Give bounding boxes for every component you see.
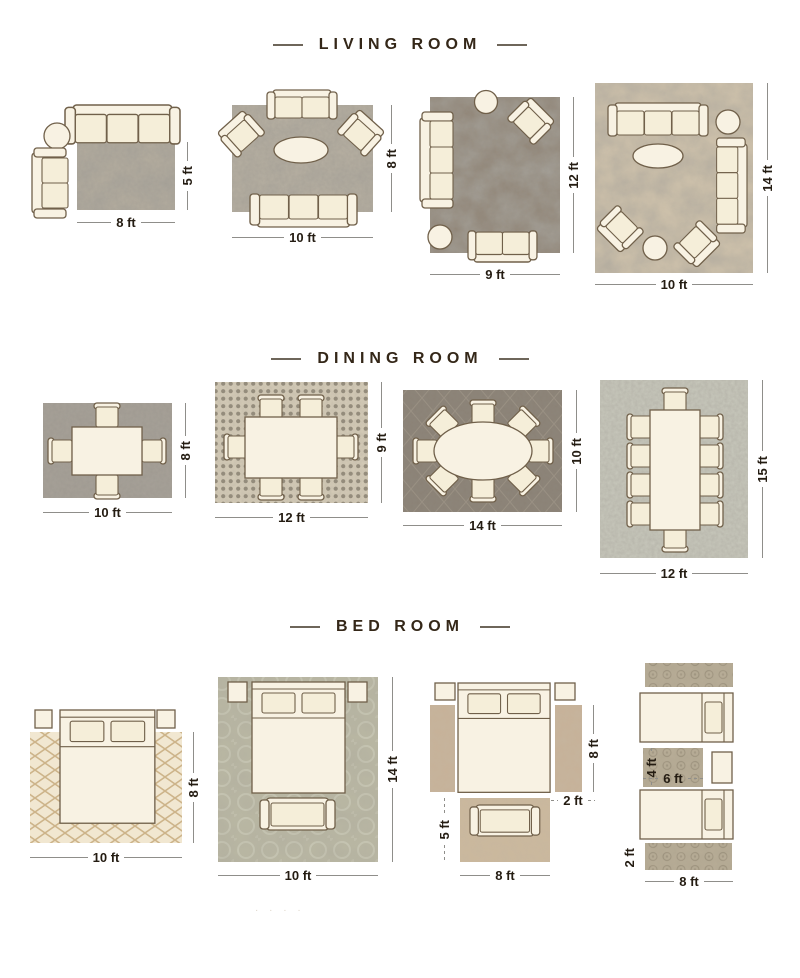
dimension-label: 9 ft — [480, 267, 510, 282]
chair — [627, 501, 651, 527]
chair — [699, 501, 723, 527]
title-dash — [271, 358, 301, 360]
layout-living-9x12: 9 ft 12 ft — [408, 82, 593, 284]
dimension-label: 10 ft — [89, 505, 126, 520]
layout-living-8x5: 8 ft 5 ft — [28, 95, 208, 235]
section-title-text: BED ROOM — [336, 618, 464, 636]
dimension-height: 12 ft — [565, 97, 581, 253]
dimension-label: 5 ft — [437, 815, 452, 845]
dimension-width: 12 ft — [215, 510, 368, 525]
runner-rug — [430, 705, 455, 792]
sofa — [250, 194, 357, 227]
layout-bed-10x8: 10 ft 8 ft — [25, 700, 205, 868]
title-dash — [499, 358, 529, 360]
dimension-label: 8 ft — [178, 436, 193, 466]
layout-living-10x14: 10 ft 14 ft — [592, 76, 787, 296]
dimension-runner-height: 2 ft — [621, 843, 637, 870]
nightstand — [348, 682, 367, 702]
dimension-height: 8 ft — [177, 403, 193, 498]
bench — [260, 798, 335, 830]
sofa — [717, 138, 747, 233]
dimension-height: 5 ft — [179, 142, 195, 210]
dimension-width: 10 ft — [595, 277, 753, 292]
chair — [142, 438, 166, 464]
title-dash — [290, 626, 320, 628]
chair — [627, 414, 651, 440]
runner-rug — [645, 663, 733, 687]
nightstand — [157, 710, 175, 728]
chair — [94, 475, 120, 499]
title-dash — [480, 626, 510, 628]
chair — [470, 400, 496, 424]
round-ottoman — [428, 225, 452, 249]
section-title-living-room: LIVING ROOM — [0, 36, 800, 54]
sofa — [65, 105, 180, 144]
title-dash — [497, 44, 527, 46]
dining-table — [650, 410, 700, 530]
title-dash — [273, 44, 303, 46]
dimension-height: 8 ft — [185, 732, 201, 843]
oval-coffee-table — [274, 137, 328, 163]
dimension-label: 15 ft — [755, 451, 770, 488]
dimension-label: 2 ft — [622, 843, 637, 873]
chair — [258, 395, 284, 419]
dimension-width: 10 ft — [218, 868, 378, 883]
floorplan-illustration — [592, 76, 787, 296]
chair — [699, 414, 723, 440]
chair — [470, 478, 496, 502]
dimension-height: 14 ft — [384, 677, 400, 862]
sofa — [420, 112, 453, 208]
dimension-label: 14 ft — [760, 160, 775, 197]
dimension-width: 12 ft — [600, 566, 748, 581]
chair — [699, 472, 723, 498]
dimension-width: 10 ft — [232, 230, 373, 245]
dimension-height: 8 ft — [383, 105, 399, 212]
rug — [77, 142, 175, 210]
bed — [458, 683, 550, 792]
round-ottoman — [643, 236, 667, 260]
round-side-table — [475, 91, 498, 114]
floorplan-illustration — [25, 700, 205, 868]
section-title-bed-room: BED ROOM — [0, 618, 800, 636]
floorplan-illustration — [212, 380, 394, 528]
layout-dining-14x10: 14 ft 10 ft — [400, 385, 585, 533]
dimension-width: 9 ft — [430, 267, 560, 282]
bed — [640, 790, 733, 839]
oval-coffee-table — [633, 144, 683, 168]
dimension-label: 10 ft — [569, 433, 584, 470]
dimension-label: 9 ft — [374, 428, 389, 458]
layout-dining-10x8: 10 ft 8 ft — [30, 395, 205, 525]
runner-rug — [645, 843, 732, 870]
dimension-width: 10 ft — [30, 850, 182, 865]
layout-dining-12x9: 12 ft 9 ft — [212, 380, 394, 528]
layout-living-10x8: 10 ft 8 ft — [222, 88, 407, 250]
dimension-label: 8 ft — [674, 874, 704, 889]
dimension-width: 14 ft — [403, 518, 562, 533]
chair — [298, 395, 324, 419]
dimension-height: 10 ft — [568, 390, 584, 512]
dimension-label: 10 ft — [88, 850, 125, 865]
dimension-label: 10 ft — [280, 868, 317, 883]
chair — [627, 443, 651, 469]
floorplan-illustration — [595, 375, 780, 587]
chair — [699, 443, 723, 469]
chair — [48, 438, 72, 464]
dimension-runner-width: 2 ft — [551, 793, 595, 808]
floorplan-illustration — [210, 670, 408, 884]
dimension-label: 6 ft — [658, 771, 688, 786]
dimension-height: 8 ft — [585, 705, 601, 792]
dining-table — [245, 417, 337, 478]
nightstand — [35, 710, 52, 728]
chair — [662, 528, 688, 552]
dimension-label: 8 ft — [586, 734, 601, 764]
nightstand — [435, 683, 455, 700]
dimension-foot-height: 5 ft — [436, 798, 452, 862]
layout-bed-10x14: 10 ft 14 ft — [210, 670, 408, 884]
dimension-height: 15 ft — [754, 380, 770, 558]
dimension-label: 5 ft — [180, 161, 195, 191]
chair — [298, 476, 324, 500]
layout-bed-twin-runners: 4 ft 6 ft 2 ft 8 ft — [618, 655, 798, 895]
round-side-table — [44, 123, 70, 149]
floorplan-illustration — [400, 385, 585, 533]
dimension-label: 12 ft — [273, 510, 310, 525]
round-side-table — [716, 110, 740, 134]
nightstand — [228, 682, 247, 702]
dimension-width: 8 ft — [77, 215, 175, 230]
dimension-height: 9 ft — [373, 382, 389, 503]
dimension-width: 8 ft — [645, 874, 733, 889]
watermark: · · · · — [255, 905, 305, 916]
dimension-label: 8 ft — [111, 215, 141, 230]
section-title-text: DINING ROOM — [317, 350, 482, 368]
floorplan-illustration — [222, 88, 407, 250]
dimension-label: 8 ft — [490, 868, 520, 883]
dimension-label: 12 ft — [566, 157, 581, 194]
bed — [252, 682, 345, 793]
chair — [662, 388, 688, 412]
sofa — [267, 90, 337, 119]
dimension-label: 8 ft — [384, 144, 399, 174]
section-title-dining-room: DINING ROOM — [0, 350, 800, 368]
dimension-width: 10 ft — [43, 505, 172, 520]
chair — [258, 476, 284, 500]
bed — [60, 710, 155, 823]
oval-dining-table — [434, 422, 532, 480]
loveseat — [32, 148, 68, 218]
layout-dining-12x15: 12 ft 15 ft — [595, 375, 780, 587]
sofa — [608, 103, 708, 136]
bed — [640, 693, 733, 742]
dimension-label: 14 ft — [464, 518, 501, 533]
dining-table — [72, 427, 142, 475]
layout-bed-runners: 8 ft 2 ft 5 ft 8 ft — [425, 672, 613, 884]
bench — [470, 805, 540, 836]
dimension-label: 14 ft — [385, 751, 400, 788]
section-title-text: LIVING ROOM — [319, 36, 482, 54]
nightstand — [712, 752, 732, 783]
dimension-label: 10 ft — [656, 277, 693, 292]
sofa — [468, 231, 537, 262]
runner-rug — [555, 705, 582, 792]
dimension-width: 8 ft — [460, 868, 550, 883]
dimension-accent-width: 6 ft — [643, 771, 703, 786]
dimension-label: 12 ft — [656, 566, 693, 581]
chair — [94, 403, 120, 427]
dimension-label: 10 ft — [284, 230, 321, 245]
dimension-height: 14 ft — [759, 83, 775, 273]
dimension-label: 8 ft — [186, 773, 201, 803]
nightstand — [555, 683, 575, 700]
chair — [627, 472, 651, 498]
dimension-label: 2 ft — [558, 793, 588, 808]
rug-size-guide: LIVING ROOM 8 ft 5 ft — [0, 0, 800, 978]
